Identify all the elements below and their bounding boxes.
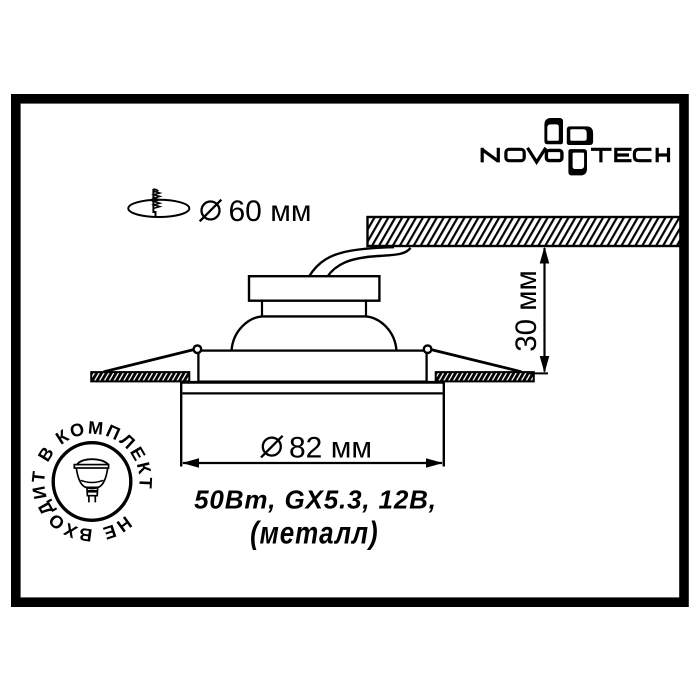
svg-text:82 мм: 82 мм (289, 431, 372, 464)
svg-text:60 мм: 60 мм (229, 195, 312, 228)
svg-text:(меmалл): (меmалл) (250, 516, 378, 551)
svg-text:50Вm, GX5.3, 12В,: 50Вm, GX5.3, 12В, (194, 485, 437, 515)
svg-text:30 мм: 30 мм (510, 270, 543, 352)
